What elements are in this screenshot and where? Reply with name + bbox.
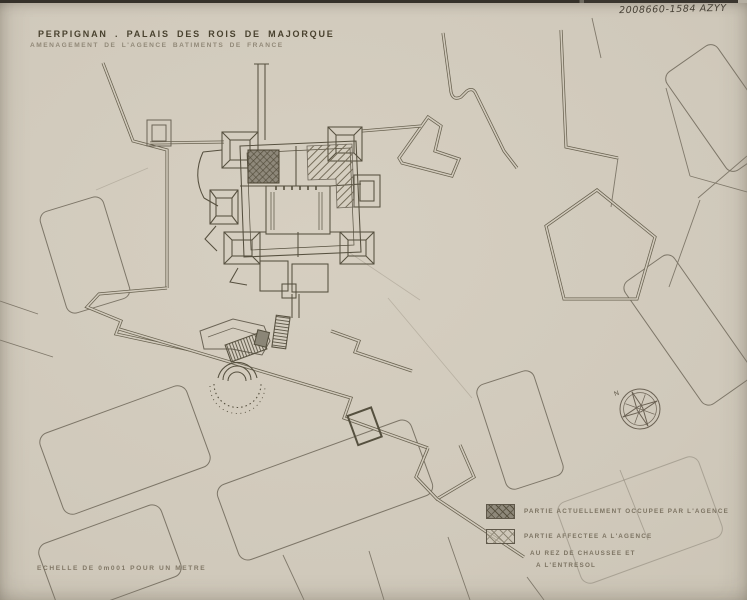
compass-north-label: N [613, 390, 620, 398]
small-dark-block [254, 330, 269, 347]
plan-subtitle: AMENAGEMENT DE L'AGENCE BATIMENTS DE FRA… [30, 42, 284, 49]
citadel-ramparts [87, 30, 655, 557]
south-wing [260, 261, 328, 318]
legend-label-affected-line3: A L'ENTRESOL [536, 562, 596, 569]
tower-southwest [224, 232, 260, 264]
scanned-plan-sheet: N PERPIGNAN . PALAIS DES ROIS DE MAJORQU… [0, 0, 747, 600]
occupied-area-swatch [486, 504, 515, 519]
plan-title: PERPIGNAN . PALAIS DES ROIS DE MAJORQUE [38, 29, 335, 39]
tower-southeast [340, 232, 374, 264]
legend-label-occupied: PARTIE ACTUELLEMENT OCCUPEE PAR L'AGENCE [524, 508, 729, 515]
archive-reference-handwritten: 2008660-1584 AZYY [619, 3, 727, 16]
affected-area-swatch [486, 529, 515, 544]
tower-west [210, 190, 238, 224]
compass-rose: N [613, 384, 665, 434]
legend-label-affected-line1: PARTIE AFFECTEE A L'AGENCE [524, 533, 652, 540]
legend-label-affected-line2: AU REZ DE CHAUSSEE ET [530, 550, 636, 557]
scale-note: ECHELLE DE 0m001 POUR UN METRE [37, 565, 206, 572]
pencil-construction-lines [96, 168, 472, 398]
courtyard [266, 186, 330, 234]
